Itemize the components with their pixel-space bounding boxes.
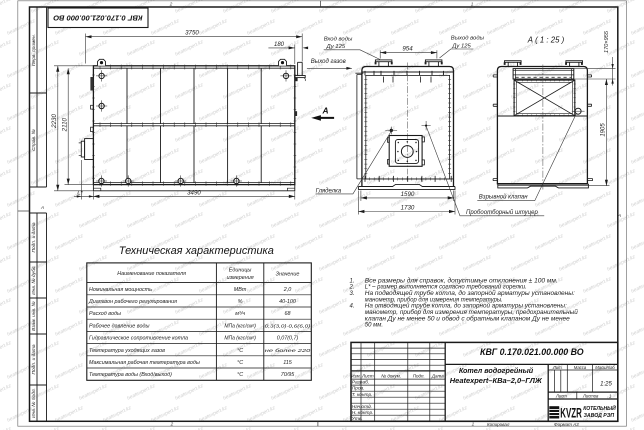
- svg-text:heatexpert.kz: heatexpert.kz: [294, 276, 325, 295]
- svg-text:heatexpert.kz: heatexpert.kz: [270, 168, 301, 187]
- svg-text:Масштаб: Масштаб: [595, 365, 615, 370]
- svg-text:heatexpert.kz: heatexpert.kz: [0, 211, 13, 230]
- svg-text:heatexpert.kz: heatexpert.kz: [630, 104, 644, 123]
- svg-text:heatexpert.kz: heatexpert.kz: [438, 18, 469, 37]
- svg-text:Температура воды (Вход/выход): Температура воды (Вход/выход): [89, 372, 172, 378]
- svg-text:1: 1: [471, 2, 474, 7]
- svg-text:heatexpert.kz: heatexpert.kz: [222, 39, 253, 58]
- svg-text:heatexpert.kz: heatexpert.kz: [606, 39, 637, 58]
- svg-text:heatexpert.kz: heatexpert.kz: [0, 297, 13, 316]
- svg-text:Значение: Значение: [276, 272, 300, 278]
- svg-text:не более 220: не более 220: [265, 348, 311, 354]
- svg-text:heatexpert.kz: heatexpert.kz: [198, 190, 229, 209]
- svg-text:Масса: Масса: [574, 365, 587, 370]
- svg-text:heatexpert.kz: heatexpert.kz: [150, 147, 181, 166]
- svg-text:МПа (кгс/см²): МПа (кгс/см²): [224, 323, 256, 329]
- svg-text:Формат А3: Формат А3: [554, 422, 579, 427]
- svg-text:heatexpert.kz: heatexpert.kz: [0, 383, 13, 402]
- svg-text:heatexpert.kz: heatexpert.kz: [510, 125, 541, 144]
- svg-text:heatexpert.kz: heatexpert.kz: [174, 39, 205, 58]
- svg-text:Вход воды: Вход воды: [324, 36, 353, 42]
- svg-text:heatexpert.kz: heatexpert.kz: [462, 82, 493, 101]
- svg-text:heatexpert.kz: heatexpert.kz: [390, 147, 421, 166]
- svg-text:50 мм.: 50 мм.: [365, 323, 383, 329]
- svg-text:Лист: Лист: [361, 373, 374, 378]
- svg-text:heatexpert.kz: heatexpert.kz: [390, 233, 421, 252]
- svg-text:heatexpert.kz: heatexpert.kz: [630, 276, 644, 295]
- svg-text:heatexpert.kz: heatexpert.kz: [78, 39, 109, 58]
- svg-text:2: 2: [169, 2, 173, 7]
- svg-text:heatexpert.kz: heatexpert.kz: [534, 18, 565, 37]
- svg-text:heatexpert.kz: heatexpert.kz: [174, 125, 205, 144]
- svg-text:heatexpert.kz: heatexpert.kz: [606, 297, 637, 316]
- svg-text:heatexpert.kz: heatexpert.kz: [78, 383, 109, 402]
- svg-text:Heatexpert–КВа–2,0–ГЛЖ: Heatexpert–КВа–2,0–ГЛЖ: [450, 376, 542, 385]
- svg-text:3490: 3490: [187, 189, 201, 196]
- svg-text:heatexpert.kz: heatexpert.kz: [630, 61, 644, 80]
- svg-text:heatexpert.kz: heatexpert.kz: [366, 254, 397, 273]
- svg-text:heatexpert.kz: heatexpert.kz: [318, 82, 349, 101]
- svg-text:heatexpert.kz: heatexpert.kz: [630, 405, 644, 424]
- svg-text:манометр, прибор для измерения: манометр, прибор для измерения температу…: [365, 309, 579, 316]
- svg-text:heatexpert.kz: heatexpert.kz: [342, 190, 373, 209]
- svg-text:heatexpert.kz: heatexpert.kz: [414, 168, 445, 187]
- svg-text:Пров.: Пров.: [352, 386, 365, 392]
- svg-text:heatexpert.kz: heatexpert.kz: [486, 18, 517, 37]
- svg-text:heatexpert.kz: heatexpert.kz: [462, 383, 493, 402]
- svg-text:heatexpert.kz: heatexpert.kz: [6, 104, 37, 123]
- svg-text:Инв. № дубл.: Инв. № дубл.: [31, 265, 37, 295]
- svg-text:L* – размер выполняется соглас: L* – размер выполняется согласно требова…: [365, 284, 527, 291]
- svg-text:А: А: [40, 205, 44, 210]
- svg-text:heatexpert.kz: heatexpert.kz: [318, 211, 349, 230]
- svg-text:°С: °С: [237, 348, 243, 354]
- svg-text:heatexpert.kz: heatexpert.kz: [534, 233, 565, 252]
- svg-text:heatexpert.kz: heatexpert.kz: [582, 319, 613, 338]
- svg-text:м³/ч: м³/ч: [235, 311, 245, 317]
- svg-text:Взрывной клапан: Взрывной клапан: [479, 193, 528, 200]
- svg-text:heatexpert.kz: heatexpert.kz: [294, 362, 325, 381]
- svg-text:ЗАВОД РЭП: ЗАВОД РЭП: [584, 413, 615, 419]
- svg-text:heatexpert.kz: heatexpert.kz: [582, 276, 613, 295]
- svg-text:heatexpert.kz: heatexpert.kz: [294, 18, 325, 37]
- svg-text:Нач.отд.: Нач.отд.: [352, 404, 372, 410]
- svg-text:heatexpert.kz: heatexpert.kz: [510, 383, 541, 402]
- svg-text:heatexpert.kz: heatexpert.kz: [54, 233, 85, 252]
- svg-text:heatexpert.kz: heatexpert.kz: [630, 319, 644, 338]
- svg-text:heatexpert.kz: heatexpert.kz: [6, 190, 37, 209]
- svg-text:%: %: [238, 299, 243, 305]
- svg-text:heatexpert.kz: heatexpert.kz: [318, 125, 349, 144]
- svg-text:heatexpert.kz: heatexpert.kz: [150, 61, 181, 80]
- svg-text:2.: 2.: [349, 285, 355, 291]
- svg-text:heatexpert.kz: heatexpert.kz: [126, 82, 157, 101]
- svg-text:heatexpert.kz: heatexpert.kz: [150, 190, 181, 209]
- svg-text:heatexpert.kz: heatexpert.kz: [0, 168, 13, 187]
- svg-text:Подп.: Подп.: [413, 373, 425, 378]
- svg-text:heatexpert.kz: heatexpert.kz: [174, 168, 205, 187]
- svg-text:heatexpert.kz: heatexpert.kz: [150, 18, 181, 37]
- svg-text:heatexpert.kz: heatexpert.kz: [54, 104, 85, 123]
- svg-text:heatexpert.kz: heatexpert.kz: [342, 61, 373, 80]
- svg-text:heatexpert.kz: heatexpert.kz: [30, 82, 61, 101]
- svg-text:170×955: 170×955: [604, 30, 610, 53]
- svg-text:Единицы: Единицы: [229, 268, 252, 274]
- svg-text:heatexpert.kz: heatexpert.kz: [174, 211, 205, 230]
- svg-text:Расход воды: Расход воды: [89, 311, 121, 317]
- svg-text:heatexpert.kz: heatexpert.kz: [78, 211, 109, 230]
- svg-text:На отводящей трубе котла, до з: На отводящей трубе котла, до запорной ар…: [365, 303, 567, 310]
- svg-text:heatexpert.kz: heatexpert.kz: [126, 168, 157, 187]
- svg-text:heatexpert.kz: heatexpert.kz: [150, 276, 181, 295]
- svg-text:Подп. и дата: Подп. и дата: [31, 222, 37, 252]
- svg-text:heatexpert.kz: heatexpert.kz: [198, 104, 229, 123]
- svg-text:heatexpert.kz: heatexpert.kz: [390, 61, 421, 80]
- svg-text:Ду 125: Ду 125: [451, 43, 471, 49]
- svg-text:heatexpert.kz: heatexpert.kz: [198, 147, 229, 166]
- svg-text:heatexpert.kz: heatexpert.kz: [6, 18, 37, 37]
- svg-text:heatexpert.kz: heatexpert.kz: [102, 104, 133, 123]
- svg-text:heatexpert.kz: heatexpert.kz: [630, 18, 644, 37]
- svg-text:heatexpert.kz: heatexpert.kz: [342, 18, 373, 37]
- svg-text:heatexpert.kz: heatexpert.kz: [342, 233, 373, 252]
- svg-text:heatexpert.kz: heatexpert.kz: [30, 168, 61, 187]
- svg-text:heatexpert.kz: heatexpert.kz: [246, 362, 277, 381]
- svg-text:А ( 1 : 25 ): А ( 1 : 25 ): [527, 36, 565, 45]
- svg-text:Гидравлическое сопротивление к: Гидравлическое сопротивление котла: [89, 336, 188, 342]
- svg-text:heatexpert.kz: heatexpert.kz: [54, 147, 85, 166]
- svg-text:heatexpert.kz: heatexpert.kz: [198, 362, 229, 381]
- svg-text:heatexpert.kz: heatexpert.kz: [54, 276, 85, 295]
- svg-text:180: 180: [274, 42, 285, 48]
- svg-text:heatexpert.kz: heatexpert.kz: [0, 39, 13, 58]
- svg-text:heatexpert.kz: heatexpert.kz: [126, 383, 157, 402]
- svg-text:heatexpert.kz: heatexpert.kz: [366, 168, 397, 187]
- svg-text:Выход воды: Выход воды: [451, 35, 485, 41]
- svg-text:heatexpert.kz: heatexpert.kz: [222, 211, 253, 230]
- svg-text:№ докум.: № докум.: [381, 373, 401, 378]
- svg-text:heatexpert.kz: heatexpert.kz: [390, 18, 421, 37]
- svg-text:Температура уходящих газов: Температура уходящих газов: [89, 348, 165, 354]
- svg-text:68: 68: [285, 311, 291, 317]
- svg-text:heatexpert.kz: heatexpert.kz: [342, 147, 373, 166]
- svg-text:heatexpert.kz: heatexpert.kz: [0, 0, 13, 15]
- svg-text:heatexpert.kz: heatexpert.kz: [318, 383, 349, 402]
- svg-text:heatexpert.kz: heatexpert.kz: [0, 340, 13, 359]
- svg-text:heatexpert.kz: heatexpert.kz: [558, 125, 589, 144]
- svg-text:115: 115: [283, 360, 293, 366]
- svg-text:Изм.: Изм.: [351, 373, 361, 378]
- svg-text:heatexpert.kz: heatexpert.kz: [102, 190, 133, 209]
- svg-text:heatexpert.kz: heatexpert.kz: [438, 233, 469, 252]
- svg-text:heatexpert.kz: heatexpert.kz: [630, 362, 644, 381]
- svg-text:heatexpert.kz: heatexpert.kz: [150, 104, 181, 123]
- svg-text:2230: 2230: [51, 114, 58, 129]
- svg-text:heatexpert.kz: heatexpert.kz: [414, 254, 445, 273]
- svg-text:heatexpert.kz: heatexpert.kz: [198, 61, 229, 80]
- svg-text:L*: L*: [77, 190, 83, 196]
- svg-text:heatexpert.kz: heatexpert.kz: [486, 104, 517, 123]
- svg-text:°С: °С: [237, 360, 243, 366]
- svg-text:МПа (кгс/см²): МПа (кгс/см²): [224, 336, 256, 342]
- svg-text:1.: 1.: [350, 278, 355, 284]
- svg-text:heatexpert.kz: heatexpert.kz: [174, 82, 205, 101]
- svg-text:1: 1: [472, 422, 475, 427]
- svg-text:heatexpert.kz: heatexpert.kz: [462, 125, 493, 144]
- svg-text:heatexpert.kz: heatexpert.kz: [486, 233, 517, 252]
- svg-text:heatexpert.kz: heatexpert.kz: [0, 125, 13, 144]
- svg-text:heatexpert.kz: heatexpert.kz: [582, 190, 613, 209]
- svg-text:°С: °С: [237, 372, 243, 378]
- svg-text:heatexpert.kz: heatexpert.kz: [198, 276, 229, 295]
- svg-text:heatexpert.kz: heatexpert.kz: [0, 426, 13, 430]
- svg-text:А: А: [617, 213, 621, 218]
- svg-text:heatexpert.kz: heatexpert.kz: [558, 254, 589, 273]
- svg-text:3750: 3750: [185, 30, 199, 37]
- svg-text:heatexpert.kz: heatexpert.kz: [246, 18, 277, 37]
- svg-text:2,0: 2,0: [283, 287, 292, 293]
- svg-text:Максимальная рабочая температу: Максимальная рабочая температура воды: [89, 360, 200, 366]
- svg-text:heatexpert.kz: heatexpert.kz: [486, 61, 517, 80]
- svg-text:Котел водогрейный: Котел водогрейный: [459, 366, 534, 375]
- svg-text:heatexpert.kz: heatexpert.kz: [318, 168, 349, 187]
- svg-text:heatexpert.kz: heatexpert.kz: [318, 254, 349, 273]
- svg-text:heatexpert.kz: heatexpert.kz: [606, 168, 637, 187]
- svg-text:heatexpert.kz: heatexpert.kz: [606, 82, 637, 101]
- svg-text:heatexpert.kz: heatexpert.kz: [0, 82, 13, 101]
- svg-text:heatexpert.kz: heatexpert.kz: [582, 233, 613, 252]
- svg-text:1: 1: [609, 394, 611, 399]
- svg-text:4.: 4.: [350, 304, 355, 310]
- svg-text:heatexpert.kz: heatexpert.kz: [606, 211, 637, 230]
- svg-text:40-100: 40-100: [279, 299, 296, 305]
- svg-text:Лист: Лист: [555, 394, 567, 399]
- svg-text:А: А: [321, 106, 328, 116]
- svg-text:Дата: Дата: [431, 373, 444, 378]
- svg-text:heatexpert.kz: heatexpert.kz: [294, 147, 325, 166]
- svg-text:Все размеры для справок, допус: Все размеры для справок, допустимые откл…: [365, 278, 558, 284]
- svg-text:heatexpert.kz: heatexpert.kz: [462, 168, 493, 187]
- svg-text:954: 954: [402, 45, 413, 52]
- svg-text:heatexpert.kz: heatexpert.kz: [54, 362, 85, 381]
- svg-text:heatexpert.kz: heatexpert.kz: [606, 254, 637, 273]
- svg-text:heatexpert.kz: heatexpert.kz: [606, 125, 637, 144]
- svg-text:0,3(3,0)-0,6(6,0): 0,3(3,0)-0,6(6,0): [265, 323, 311, 329]
- svg-text:heatexpert.kz: heatexpert.kz: [174, 383, 205, 402]
- svg-text:МВт: МВт: [234, 287, 247, 293]
- svg-text:heatexpert.kz: heatexpert.kz: [126, 211, 157, 230]
- svg-text:heatexpert.kz: heatexpert.kz: [366, 211, 397, 230]
- svg-text:Инв. № подл.: Инв. № подл.: [31, 388, 37, 418]
- svg-text:Н. контр.: Н. контр.: [352, 410, 374, 416]
- svg-text:КВГ 0.170.021.00.000 ВО: КВГ 0.170.021.00.000 ВО: [480, 347, 584, 357]
- svg-text:heatexpert.kz: heatexpert.kz: [558, 211, 589, 230]
- svg-text:Т. контр.: Т. контр.: [352, 392, 373, 398]
- svg-text:heatexpert.kz: heatexpert.kz: [294, 233, 325, 252]
- svg-text:Копировал: Копировал: [487, 422, 510, 427]
- svg-text:heatexpert.kz: heatexpert.kz: [126, 39, 157, 58]
- svg-text:heatexpert.kz: heatexpert.kz: [558, 82, 589, 101]
- svg-text:1730: 1730: [401, 205, 415, 212]
- svg-text:heatexpert.kz: heatexpert.kz: [102, 61, 133, 80]
- svg-text:Перв. примен.: Перв. примен.: [31, 34, 37, 66]
- svg-text:heatexpert.kz: heatexpert.kz: [174, 297, 205, 316]
- svg-text:Диапазон рабочего регулировани: Диапазон рабочего регулирования: [88, 299, 177, 305]
- svg-text:heatexpert.kz: heatexpert.kz: [318, 297, 349, 316]
- svg-text:1590: 1590: [401, 191, 415, 198]
- svg-text:3.: 3.: [350, 291, 355, 297]
- svg-text:heatexpert.kz: heatexpert.kz: [630, 233, 644, 252]
- svg-text:heatexpert.kz: heatexpert.kz: [318, 340, 349, 359]
- svg-text:heatexpert.kz: heatexpert.kz: [462, 254, 493, 273]
- svg-text:Техническая характеристика: Техническая характеристика: [119, 245, 274, 257]
- svg-text:Листов: Листов: [582, 394, 599, 399]
- svg-text:heatexpert.kz: heatexpert.kz: [222, 82, 253, 101]
- svg-text:Утв.: Утв.: [352, 416, 363, 422]
- svg-text:heatexpert.kz: heatexpert.kz: [366, 82, 397, 101]
- svg-text:heatexpert.kz: heatexpert.kz: [390, 104, 421, 123]
- svg-text:heatexpert.kz: heatexpert.kz: [534, 147, 565, 166]
- svg-text:heatexpert.kz: heatexpert.kz: [486, 147, 517, 166]
- svg-text:heatexpert.kz: heatexpert.kz: [270, 125, 301, 144]
- svg-text:2110: 2110: [61, 117, 68, 132]
- svg-text:heatexpert.kz: heatexpert.kz: [510, 254, 541, 273]
- svg-text:Наименование показателя: Наименование показателя: [117, 271, 186, 277]
- svg-text:КОТЕЛЬНЫЙ: КОТЕЛЬНЫЙ: [583, 404, 616, 412]
- svg-text:Номинальная мощность: Номинальная мощность: [89, 287, 152, 293]
- svg-text:манометр, прибор для измерения: манометр, прибор для измерения температу…: [365, 297, 503, 303]
- svg-text:heatexpert.kz: heatexpert.kz: [630, 190, 644, 209]
- svg-text:Рабочее давление воды: Рабочее давление воды: [89, 323, 149, 329]
- svg-text:heatexpert.kz: heatexpert.kz: [54, 319, 85, 338]
- svg-text:heatexpert.kz: heatexpert.kz: [222, 125, 253, 144]
- svg-text:heatexpert.kz: heatexpert.kz: [222, 383, 253, 402]
- svg-text:На подводящей трубе котла, до: На подводящей трубе котла, до запорной а…: [365, 290, 575, 297]
- svg-text:клапан Ду не менее 50 и обвод: клапан Ду не менее 50 и обвод с обратным…: [365, 316, 571, 322]
- svg-text:heatexpert.kz: heatexpert.kz: [246, 190, 277, 209]
- svg-text:Лит.: Лит.: [552, 365, 563, 370]
- svg-text:Взам. инв. №: Взам. инв. №: [31, 301, 37, 331]
- svg-text:heatexpert.kz: heatexpert.kz: [126, 125, 157, 144]
- svg-text:heatexpert.kz: heatexpert.kz: [414, 82, 445, 101]
- svg-text:1:25: 1:25: [600, 381, 612, 387]
- svg-text:Выход газов: Выход газов: [311, 59, 346, 65]
- svg-text:70/95: 70/95: [281, 372, 295, 378]
- svg-text:КВГ 0.170.021.00.000 ВО: КВГ 0.170.021.00.000 ВО: [53, 14, 142, 23]
- svg-text:heatexpert.kz: heatexpert.kz: [270, 211, 301, 230]
- svg-text:0,07(0,7): 0,07(0,7): [277, 336, 299, 342]
- svg-text:Пробоотборный штуцер: Пробоотборный штуцер: [466, 209, 538, 216]
- svg-text:heatexpert.kz: heatexpert.kz: [0, 254, 13, 273]
- svg-text:heatexpert.kz: heatexpert.kz: [630, 147, 644, 166]
- svg-text:Подп. и дата: Подп. и дата: [31, 344, 37, 374]
- svg-text:1905: 1905: [600, 123, 606, 137]
- svg-text:измерения: измерения: [227, 275, 254, 281]
- svg-text:2: 2: [170, 422, 174, 427]
- svg-text:heatexpert.kz: heatexpert.kz: [414, 211, 445, 230]
- svg-text:heatexpert.kz: heatexpert.kz: [270, 383, 301, 402]
- svg-text:heatexpert.kz: heatexpert.kz: [366, 125, 397, 144]
- svg-text:heatexpert.kz: heatexpert.kz: [342, 104, 373, 123]
- svg-text:KVZR: KVZR: [560, 405, 582, 420]
- svg-text:Разраб.: Разраб.: [352, 380, 369, 386]
- svg-text:heatexpert.kz: heatexpert.kz: [198, 18, 229, 37]
- svg-text:heatexpert.kz: heatexpert.kz: [414, 39, 445, 58]
- svg-text:Ду 125: Ду 125: [326, 44, 346, 50]
- svg-text:heatexpert.kz: heatexpert.kz: [102, 147, 133, 166]
- svg-text:Справ. №: Справ. №: [31, 129, 37, 151]
